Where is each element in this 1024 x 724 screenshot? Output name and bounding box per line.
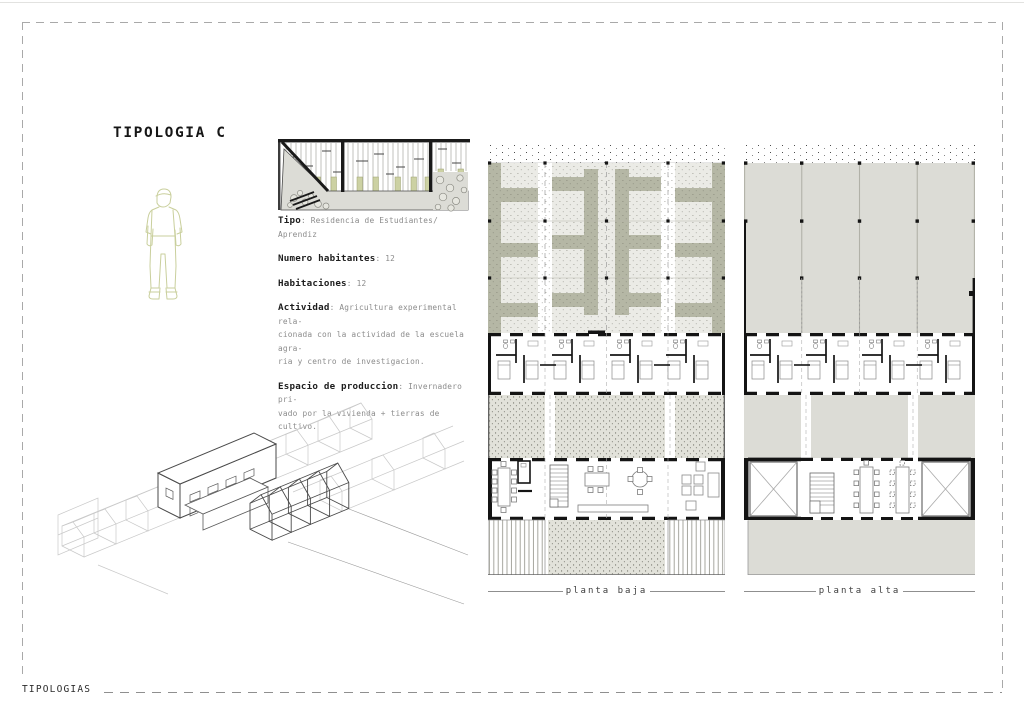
info-habitaciones-label: Habitaciones <box>278 278 347 289</box>
caption-planta-alta-label: planta alta <box>816 586 904 596</box>
stairs <box>810 473 834 513</box>
highlighted-building <box>158 433 276 530</box>
page-title: TIPOLOGIA C <box>113 125 227 141</box>
bedroom-row <box>744 333 975 395</box>
plan-planta-baja <box>488 143 725 575</box>
dashed-border-bottom <box>104 692 1002 693</box>
garden-area <box>488 161 725 333</box>
axonometric-drawing <box>38 370 470 610</box>
info-habitaciones: Habitaciones: 12 <box>278 276 482 290</box>
living-row <box>488 458 725 520</box>
info-tipo-value: : Residencia de Estudiantes/ Aprendiz <box>278 216 438 239</box>
info-actividad: Actividad: Agricultura experimental rela… <box>278 300 482 368</box>
bedroom-row <box>488 331 725 396</box>
info-habitaciones-value: : 12 <box>347 279 367 288</box>
caption-planta-alta: planta alta <box>744 586 975 596</box>
lower-roof-band <box>748 520 975 575</box>
info-actividad-label: Actividad <box>278 302 330 313</box>
section-drawing <box>278 139 470 213</box>
upper-room-row <box>744 458 975 520</box>
info-tipo: Tipo: Residencia de Estudiantes/ Aprendi… <box>278 213 482 240</box>
void-x-right <box>922 462 969 516</box>
dashed-border-top <box>22 22 1002 23</box>
courtyard-band <box>488 395 725 458</box>
caption-rule <box>903 591 975 592</box>
caption-rule <box>488 591 563 592</box>
plan-planta-alta <box>744 143 975 575</box>
dashed-border-right <box>1002 22 1003 692</box>
terrace-band <box>744 395 975 458</box>
deck-band <box>488 520 725 575</box>
info-habitantes-label: Numero habitantes <box>278 253 375 264</box>
presentation-sheet: TIPOLOGIA C <box>0 0 1024 724</box>
caption-planta-baja-label: planta baja <box>563 586 651 596</box>
human-figure-icon <box>137 184 189 304</box>
dashed-border-left <box>22 22 23 678</box>
info-tipo-label: Tipo <box>278 215 301 226</box>
info-habitantes-value: : 12 <box>375 254 395 263</box>
field-strip <box>744 143 975 163</box>
roof-terrace-area <box>744 161 975 333</box>
caption-planta-baja: planta baja <box>488 586 725 596</box>
ground-lines <box>288 509 468 604</box>
caption-rule <box>744 591 816 592</box>
footer-label: TIPOLOGIAS <box>22 684 95 695</box>
stairs <box>550 465 568 507</box>
void-x-left <box>750 462 797 516</box>
info-habitantes: Numero habitantes: 12 <box>278 251 482 265</box>
page-top-hairline <box>0 2 1024 3</box>
field-strip <box>488 143 725 163</box>
caption-rule <box>650 591 725 592</box>
